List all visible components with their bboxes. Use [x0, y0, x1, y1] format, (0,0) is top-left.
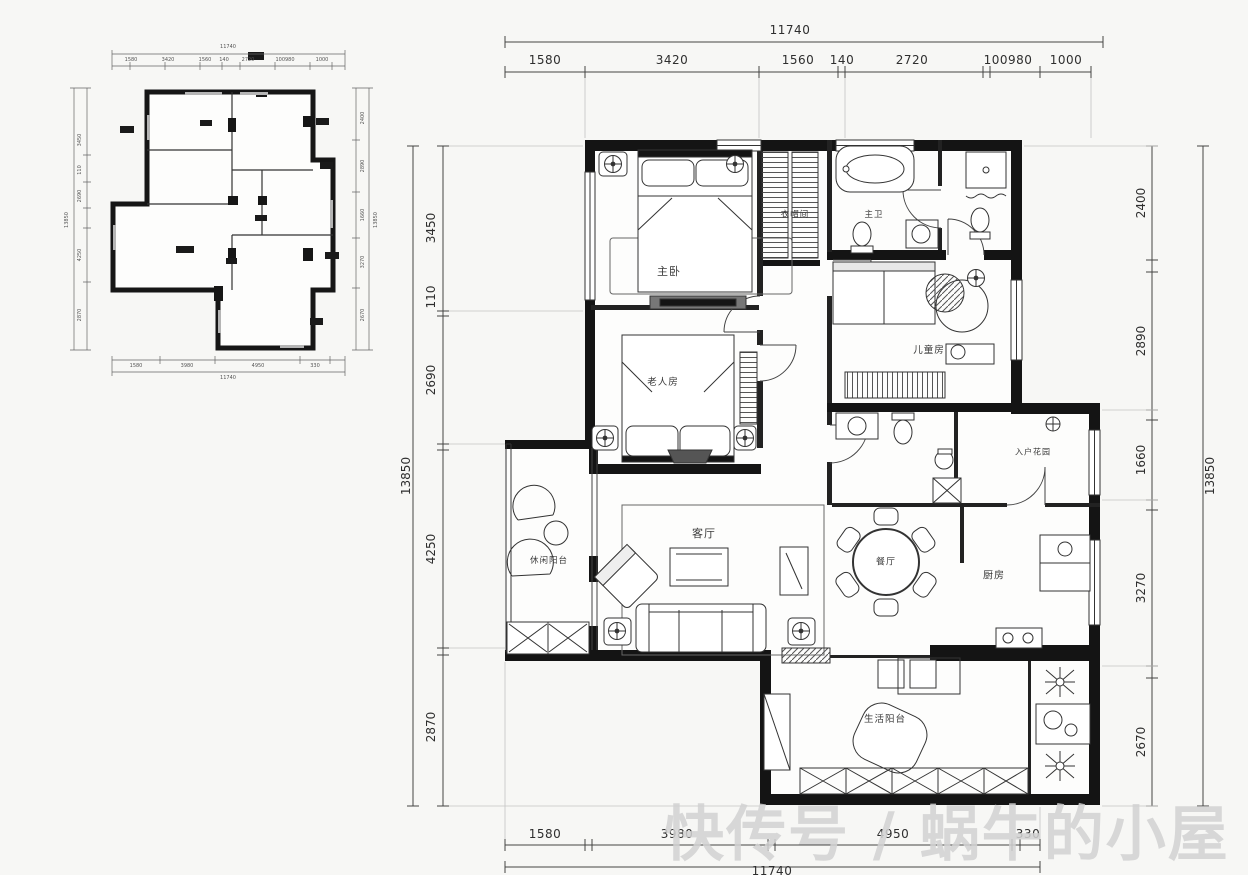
small-dim: 4250	[77, 249, 83, 262]
floor-plan-drawing	[0, 0, 1248, 875]
small-dim: 330	[310, 363, 320, 369]
dim-left-seg: 2870	[424, 712, 438, 743]
elder-tv	[668, 450, 712, 463]
elder-wardrobe	[740, 352, 757, 424]
dim-top-seg: 3420	[656, 53, 689, 67]
dim-bottom-seg: 330	[1016, 827, 1040, 841]
toilet	[894, 420, 912, 444]
small-dim: 4950	[252, 363, 265, 369]
dim-left-total: 13850	[399, 457, 413, 495]
small-dim: 3980	[181, 363, 194, 369]
room-label-kids-room: 儿童房	[913, 342, 945, 356]
small-dim: 13850	[373, 212, 379, 228]
dim-top-total: 11740	[770, 23, 811, 37]
dim-left-seg: 110	[424, 286, 438, 309]
small-dim: 3420	[162, 57, 175, 63]
room-label-kitchen: 厨房	[983, 567, 1005, 582]
small-dim: 2890	[360, 160, 366, 173]
room-label-cloakroom: 衣帽间	[781, 208, 810, 220]
dim-bottom-seg: 1580	[529, 827, 562, 841]
small-dim: 1560	[199, 57, 212, 63]
small-dim: 2690	[77, 190, 83, 203]
dim-left-seg: 4250	[424, 534, 438, 565]
dim-bottom-seg: 3980	[661, 827, 694, 841]
washbasin	[848, 417, 866, 435]
dim-top-seg: 2720	[896, 53, 929, 67]
dim-right-seg: 2400	[1134, 188, 1148, 219]
small-plan	[70, 50, 373, 376]
room-label-master-bath: 主卫	[864, 208, 883, 220]
small-dim: 2870	[77, 309, 83, 322]
dim-top-seg: 1580	[529, 53, 562, 67]
small-dim: 2720	[242, 57, 255, 63]
entry-mat	[782, 648, 830, 663]
room-label-entry-garden: 入户花园	[1015, 447, 1051, 458]
toilet	[971, 208, 989, 232]
washbasin	[912, 225, 930, 243]
utility-sink	[1036, 704, 1090, 744]
dim-right-seg: 3270	[1134, 573, 1148, 604]
dim-left-seg: 3450	[424, 213, 438, 244]
floor-plan-page: 快传号 / 蜗牛的小屋 11740 1580 3420 1560 140 272…	[0, 0, 1248, 875]
small-dim: 3450	[77, 134, 83, 147]
small-dim: 11740	[220, 44, 236, 50]
bookshelf	[845, 372, 945, 398]
dim-top-seg: 1000	[1050, 53, 1083, 67]
toilet	[853, 222, 871, 246]
dim-top-seg: 140	[830, 53, 854, 67]
small-dim: 2670	[360, 309, 366, 322]
dim-top-seg: 100980	[984, 53, 1033, 67]
room-label-service-balcony: 生活阳台	[864, 711, 906, 725]
small-dim: 1000	[316, 57, 329, 63]
room-label-elder-room: 老人房	[647, 374, 679, 388]
room-label-master-bedroom: 主卧	[657, 263, 681, 279]
small-dim: 140	[219, 57, 229, 63]
dim-right-seg: 1660	[1134, 445, 1148, 476]
dim-bottom-seg: 4950	[877, 827, 910, 841]
dim-bottom-total: 11740	[752, 864, 793, 875]
small-dim: 1660	[360, 209, 366, 222]
small-dim: 110	[77, 165, 83, 175]
dim-top-seg: 1560	[782, 53, 815, 67]
small-dim: 100980	[275, 57, 294, 63]
sofa	[636, 604, 766, 652]
small-dim: 11740	[220, 375, 236, 381]
small-dim: 13850	[64, 212, 70, 228]
room-label-living-room: 客厅	[692, 525, 716, 541]
room-label-dining-room: 餐厅	[876, 555, 896, 568]
dim-left-seg: 2690	[424, 365, 438, 396]
dim-right-total: 13850	[1203, 457, 1217, 495]
small-dim: 2400	[360, 112, 366, 125]
small-dim: 1580	[130, 363, 143, 369]
small-dim: 3270	[360, 256, 366, 269]
dim-right-seg: 2670	[1134, 727, 1148, 758]
small-dim: 1580	[125, 57, 138, 63]
room-label-leisure-balcony: 休闲阳台	[530, 554, 568, 566]
dim-right-seg: 2890	[1134, 326, 1148, 357]
